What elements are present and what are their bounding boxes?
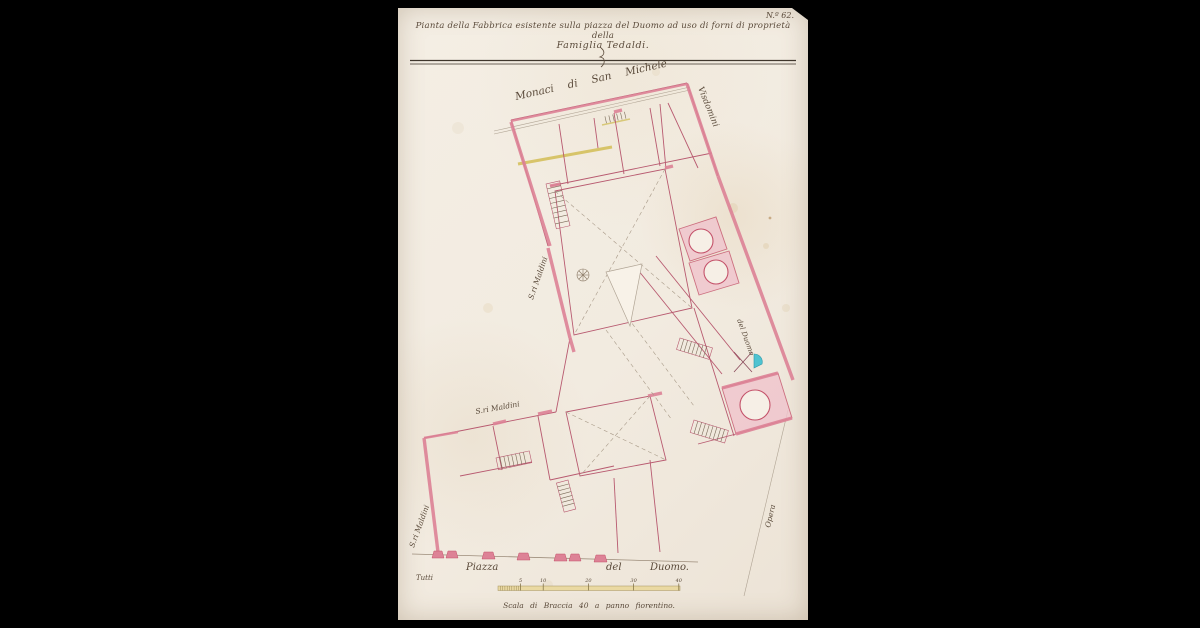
label-piazza-word3: Duomo. (649, 562, 689, 573)
plan-title-line2: Famiglia Tedaldi. (398, 40, 808, 51)
title-rules (410, 61, 796, 65)
scale-tick-label: 40 (675, 578, 683, 584)
label-monastery: Monaci di San Michele (513, 58, 668, 104)
main-walls (424, 84, 793, 552)
label-maldini-lower: S.ri Maldini (407, 503, 431, 549)
plan-title-line1: Pianta della Fabbrica esistente sulla pi… (406, 21, 800, 41)
piazza-piers (432, 551, 607, 562)
photograph-background: 5 10 20 30 40 Scala di Braccia 40 a pann… (0, 0, 1200, 628)
paper-flap (606, 264, 642, 326)
dashed-lines (555, 169, 694, 476)
scale-tick-label: 30 (630, 578, 637, 584)
pencil-lines (412, 87, 788, 596)
label-street-del-duomo: del Duomo (735, 318, 756, 357)
label-piazza-word2: del (606, 562, 622, 573)
plan-label-texts: Monaci di San Michele Visdomini S.ri Mal… (407, 58, 777, 582)
staircase-hatch (496, 112, 728, 512)
label-maldini-middle: S.ri Maldini (475, 399, 521, 416)
compass-wheel (577, 269, 589, 281)
scale-bar: 5 10 20 30 40 Scala di Braccia 40 a pann… (498, 578, 683, 610)
label-maldini-upper: S.ri Maldini (526, 255, 549, 301)
scale-tick-label: 20 (584, 578, 592, 584)
plan-sheet: 5 10 20 30 40 Scala di Braccia 40 a pann… (398, 8, 808, 620)
archive-number: N.º 62. (766, 11, 794, 20)
yellow-wall-marks (518, 119, 630, 164)
scale-tick-label: 5 (519, 578, 522, 584)
floor-plan-drawing: 5 10 20 30 40 Scala di Braccia 40 a pann… (398, 8, 808, 620)
scale-tick-label: 10 (540, 578, 547, 584)
cyan-basin (754, 354, 762, 368)
scale-caption: Scala di Braccia 40 a panno fiorentino. (503, 601, 675, 610)
label-piazza-word1: Piazza (465, 562, 498, 573)
label-pencil-note: Tutti (416, 574, 433, 582)
